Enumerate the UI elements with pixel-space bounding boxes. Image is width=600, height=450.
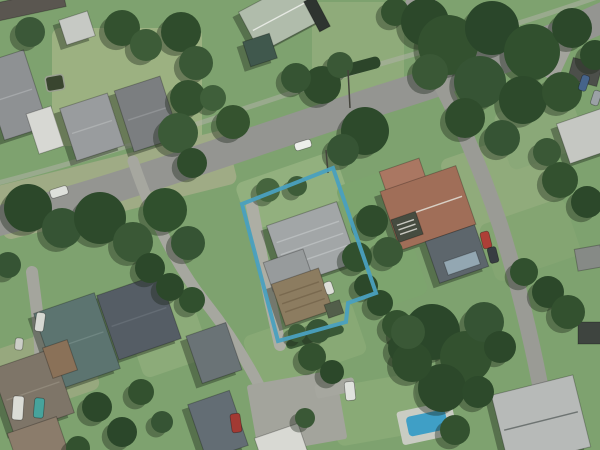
tree-2 — [130, 29, 162, 61]
tree-38 — [504, 24, 560, 80]
aerial-map-viewport[interactable] — [0, 0, 600, 450]
tree-64 — [295, 408, 315, 428]
tree-8 — [216, 105, 250, 139]
tree-6 — [158, 113, 198, 153]
tree-69 — [107, 417, 137, 447]
tree-60 — [391, 315, 425, 349]
tree-63 — [320, 360, 344, 384]
tree-3 — [161, 12, 201, 52]
tree-42 — [542, 72, 582, 112]
tree-59 — [440, 415, 470, 445]
tree-45 — [484, 120, 520, 156]
tree-61 — [462, 376, 494, 408]
tree-43 — [412, 54, 448, 90]
aerial-imagery — [0, 0, 600, 450]
tree-39 — [552, 8, 592, 48]
tree-30 — [356, 205, 388, 237]
tree-66 — [156, 273, 184, 301]
tree-68 — [128, 379, 154, 405]
tree-58 — [484, 331, 516, 363]
shed-bottom-right-dark — [578, 322, 600, 344]
car-white-center — [344, 381, 356, 401]
tree-23 — [327, 134, 359, 166]
tree-52 — [551, 295, 585, 329]
car-red-bottom-center — [230, 413, 243, 433]
tree-70 — [151, 411, 173, 433]
tree-12 — [281, 63, 311, 93]
tree-7 — [177, 148, 207, 178]
tree-41 — [499, 76, 547, 124]
van-white-bottom — [12, 396, 25, 421]
tree-0 — [15, 17, 45, 47]
tree-67 — [82, 392, 112, 422]
tree-44 — [445, 98, 485, 138]
tree-18 — [143, 188, 187, 232]
tree-49 — [533, 138, 561, 166]
tree-4 — [179, 46, 213, 80]
tree-47 — [542, 162, 578, 198]
trampoline — [45, 74, 65, 92]
car-teal-bottom-left — [33, 398, 45, 419]
tree-31 — [373, 237, 403, 267]
trailer-white — [14, 338, 23, 351]
shed-right-edge — [574, 245, 600, 271]
tree-50 — [510, 258, 538, 286]
tree-11 — [327, 52, 353, 78]
tree-9 — [200, 85, 226, 111]
tree-19 — [171, 226, 205, 260]
